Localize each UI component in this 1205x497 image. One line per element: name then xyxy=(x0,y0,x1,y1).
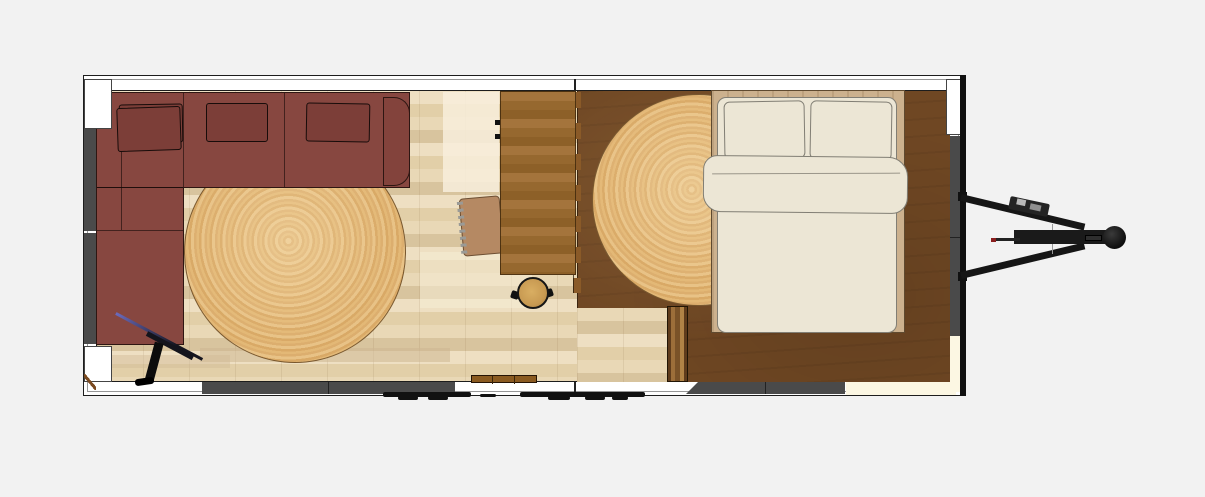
duvet-crease xyxy=(712,173,900,175)
partition-line-top xyxy=(574,79,576,91)
bedroom-entry-floor xyxy=(577,308,668,382)
bed-pillow-right xyxy=(809,100,892,160)
sofa-seam xyxy=(97,230,183,231)
floor-plan-canvas xyxy=(0,0,1205,497)
desk-grommet xyxy=(495,120,500,125)
stabilizer-foot xyxy=(548,396,570,400)
sofa-back-pillow xyxy=(206,103,268,142)
bed-pillow-left xyxy=(724,100,806,159)
sofa-seam xyxy=(284,93,285,187)
winch-highlight xyxy=(1029,203,1041,211)
step-bench[interactable] xyxy=(667,306,688,382)
stabilizer-step xyxy=(520,392,645,397)
jack-handle-tip xyxy=(991,238,996,242)
stabilizer-foot xyxy=(428,396,448,400)
sofa-seam xyxy=(97,187,183,188)
chaise-pillow xyxy=(116,106,181,152)
drawbar-notch xyxy=(1085,235,1102,241)
board-seam xyxy=(492,376,493,384)
hitch-tongue-lower-bar[interactable] xyxy=(960,242,1085,278)
board-seam xyxy=(514,376,515,384)
stabilizer-foot xyxy=(585,396,605,400)
sofa-back-pillow xyxy=(306,102,371,142)
wooden-stool[interactable] xyxy=(517,277,549,309)
undercarriage-mark xyxy=(480,394,496,397)
sofa-armrest xyxy=(383,97,410,186)
undercarriage-mark xyxy=(450,394,464,397)
desk-counter[interactable] xyxy=(500,91,576,275)
desk-grommet xyxy=(495,134,500,139)
door-panel-bottom[interactable] xyxy=(846,382,956,395)
trailer-rear-edge xyxy=(960,75,966,396)
corner-brace xyxy=(84,374,96,390)
sofa-seam xyxy=(121,150,122,230)
duvet-fold xyxy=(703,155,909,214)
winch-highlight xyxy=(1016,198,1026,206)
corner-post-top-right xyxy=(946,79,961,135)
stabilizer-foot xyxy=(398,396,418,400)
panel-seam xyxy=(328,382,329,394)
wheel-well-panel-left xyxy=(84,128,96,231)
wheel-well-panel-bottom xyxy=(686,382,845,394)
jack-handle-rod xyxy=(994,238,1020,241)
wall-board[interactable] xyxy=(471,375,537,383)
stabilizer-foot xyxy=(612,396,628,400)
coupler-ball[interactable] xyxy=(1103,226,1126,249)
panel-seam xyxy=(765,382,766,394)
corner-post-top-left xyxy=(84,79,112,129)
wheel-well-panel-left xyxy=(84,233,96,344)
desk-chair[interactable] xyxy=(459,195,505,256)
